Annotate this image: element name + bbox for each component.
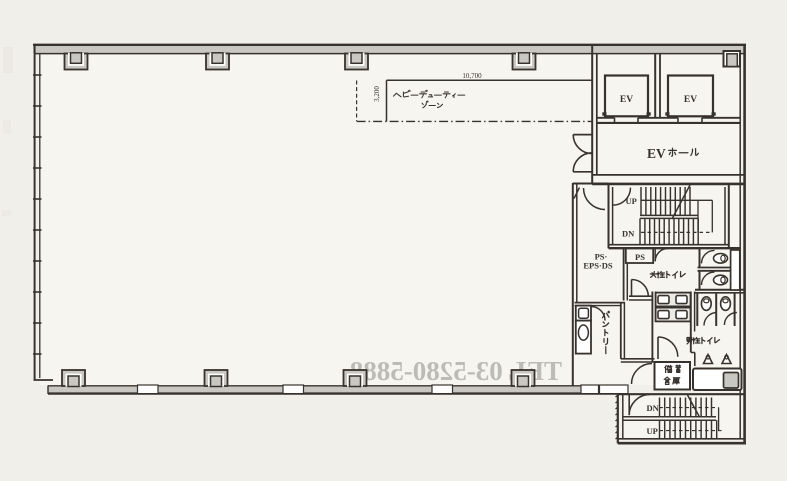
svg-text:EV: EV <box>620 95 633 105</box>
svg-text:EV: EV <box>647 146 666 161</box>
svg-text:3,200: 3,200 <box>373 86 381 102</box>
svg-text:DN: DN <box>647 403 660 413</box>
svg-text:10,700: 10,700 <box>462 72 482 80</box>
svg-text:EPS·DS: EPS·DS <box>583 261 613 271</box>
svg-text:UP: UP <box>647 426 658 436</box>
svg-text:PS: PS <box>635 252 645 262</box>
svg-text:DN: DN <box>622 229 635 239</box>
svg-text:EV: EV <box>684 95 697 105</box>
